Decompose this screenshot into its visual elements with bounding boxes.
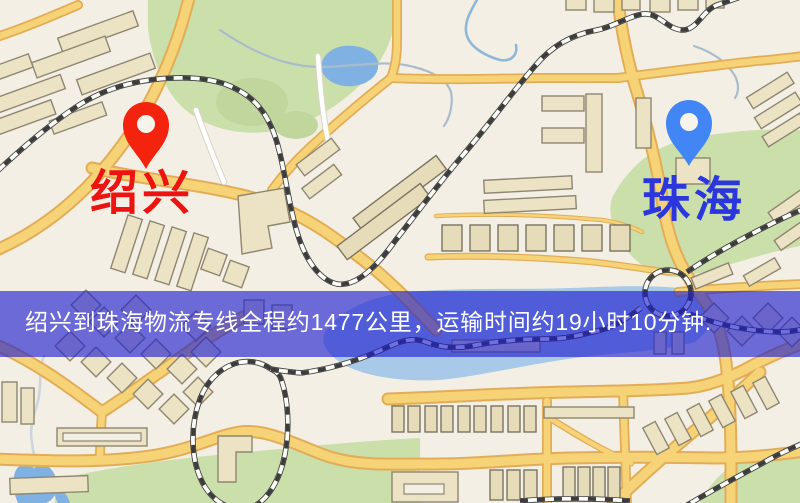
info-banner: 绍兴到珠海物流专线全程约1477公里，运输时间约19小时10分钟. [0,291,800,357]
map-canvas: 绍兴 珠海 绍兴到珠海物流专线全程约1477公里，运输时间约19小时10分钟. [0,0,800,503]
map-graphic [0,0,800,503]
origin-label: 绍兴 [90,170,194,218]
banner-text: 绍兴到珠海物流专线全程约1477公里，运输时间约19小时10分钟. [25,303,712,337]
destination-label: 珠海 [642,177,746,225]
